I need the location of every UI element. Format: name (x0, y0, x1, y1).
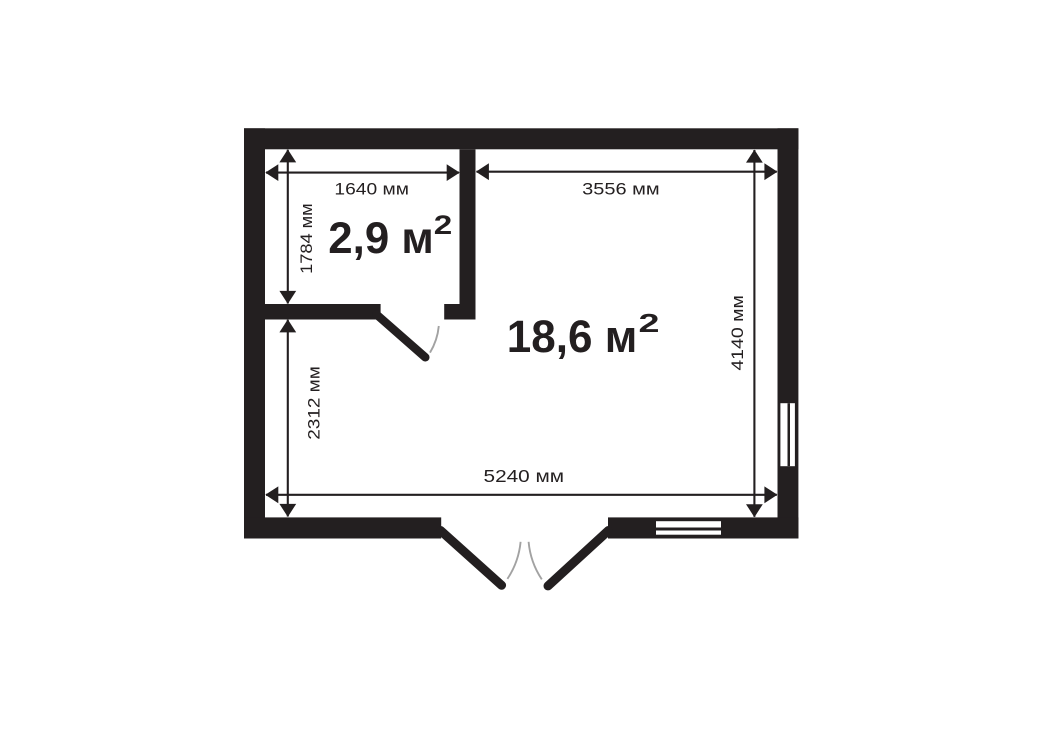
svg-text:3556 мм: 3556 мм (582, 179, 660, 198)
svg-text:2: 2 (639, 308, 660, 338)
svg-text:1784 мм: 1784 мм (297, 203, 316, 274)
svg-text:18,6 м: 18,6 м (507, 311, 638, 362)
svg-text:1640 мм: 1640 мм (334, 179, 409, 198)
svg-text:4140 мм: 4140 мм (728, 295, 747, 371)
svg-text:2312 мм: 2312 мм (304, 366, 323, 440)
svg-text:5240 мм: 5240 мм (484, 466, 565, 486)
svg-text:2,9 м: 2,9 м (328, 214, 434, 263)
svg-text:2: 2 (434, 210, 453, 240)
